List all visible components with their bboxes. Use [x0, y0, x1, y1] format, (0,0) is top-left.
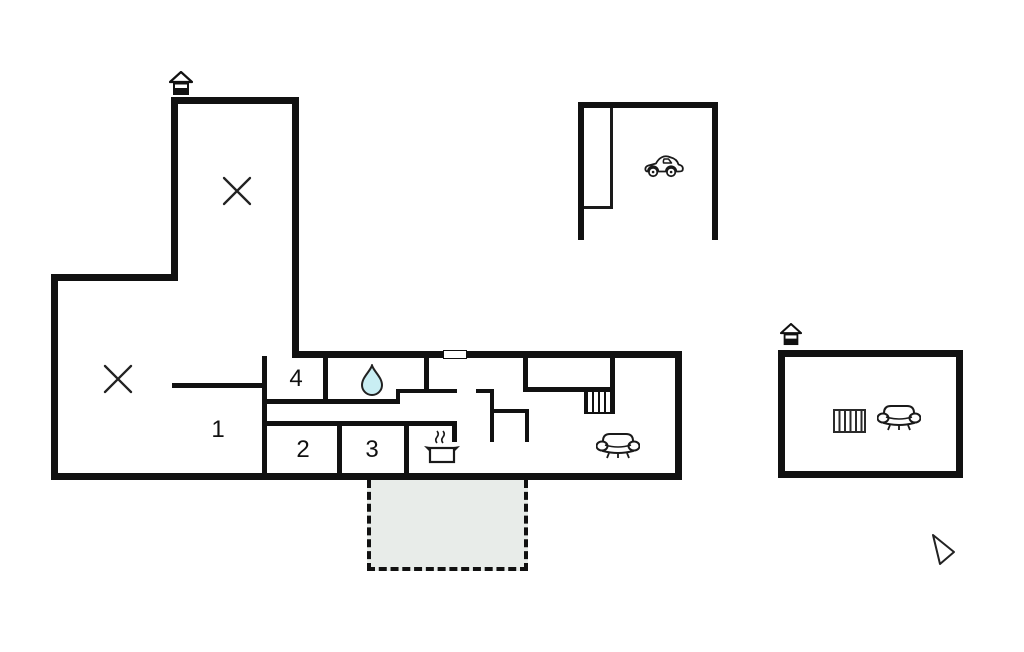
wall-rooms-left-vertical: [262, 356, 267, 478]
window-marker: [443, 350, 467, 359]
sofa-icon: [596, 429, 640, 461]
room-label-3: 3: [358, 436, 386, 464]
cooking-pot-icon: [422, 429, 462, 466]
car-icon: [643, 149, 685, 180]
garage-wall-right: [712, 102, 718, 240]
stairs-icon: [833, 409, 866, 433]
wall-step: [51, 274, 178, 281]
terrace-area: [367, 480, 528, 571]
x-marker-icon: [101, 362, 135, 396]
wall-wing-left: [171, 97, 178, 281]
wall-hall-horizontal: [494, 409, 529, 413]
stairs-icon: [584, 392, 612, 414]
wall-mid-top: [292, 351, 682, 358]
entrance-icon: [169, 71, 193, 96]
wall-room3-kitchen-divider: [404, 421, 409, 478]
room-label-4: 4: [282, 365, 310, 393]
annex-outline: [778, 350, 963, 478]
wall-room2-room3-divider: [337, 421, 342, 478]
wall-room4-bath-divider: [323, 356, 328, 404]
wall-rooms23-top: [262, 421, 457, 426]
wall-hall-vertical-2: [525, 409, 529, 442]
wall-bath-bottom: [262, 399, 400, 404]
wall-wing-right: [292, 97, 299, 358]
wall-closet-left: [523, 356, 528, 391]
garage-inner-wall-vertical: [610, 108, 613, 209]
wall-room1-top: [172, 383, 267, 388]
garage-inner-wall-horizontal: [584, 206, 613, 209]
entrance-icon: [780, 323, 802, 346]
garage-wall-left: [578, 102, 584, 240]
wall-bottom: [51, 473, 682, 480]
x-marker-icon: [220, 174, 254, 208]
cursor-pointer-icon: [928, 532, 958, 566]
water-drop-icon: [361, 364, 383, 396]
wall-left: [51, 274, 58, 480]
garage-wall-top: [578, 102, 718, 108]
room-label-1: 1: [204, 416, 232, 444]
sofa-icon: [877, 401, 921, 433]
wall-bath-right: [424, 356, 429, 393]
wall-right: [675, 351, 682, 480]
room-label-2: 2: [289, 436, 317, 464]
wall-hall-vertical-1: [490, 389, 494, 442]
floor-plan-canvas: 1 2 3 4: [0, 0, 1024, 652]
wall-wing-top: [171, 97, 299, 104]
